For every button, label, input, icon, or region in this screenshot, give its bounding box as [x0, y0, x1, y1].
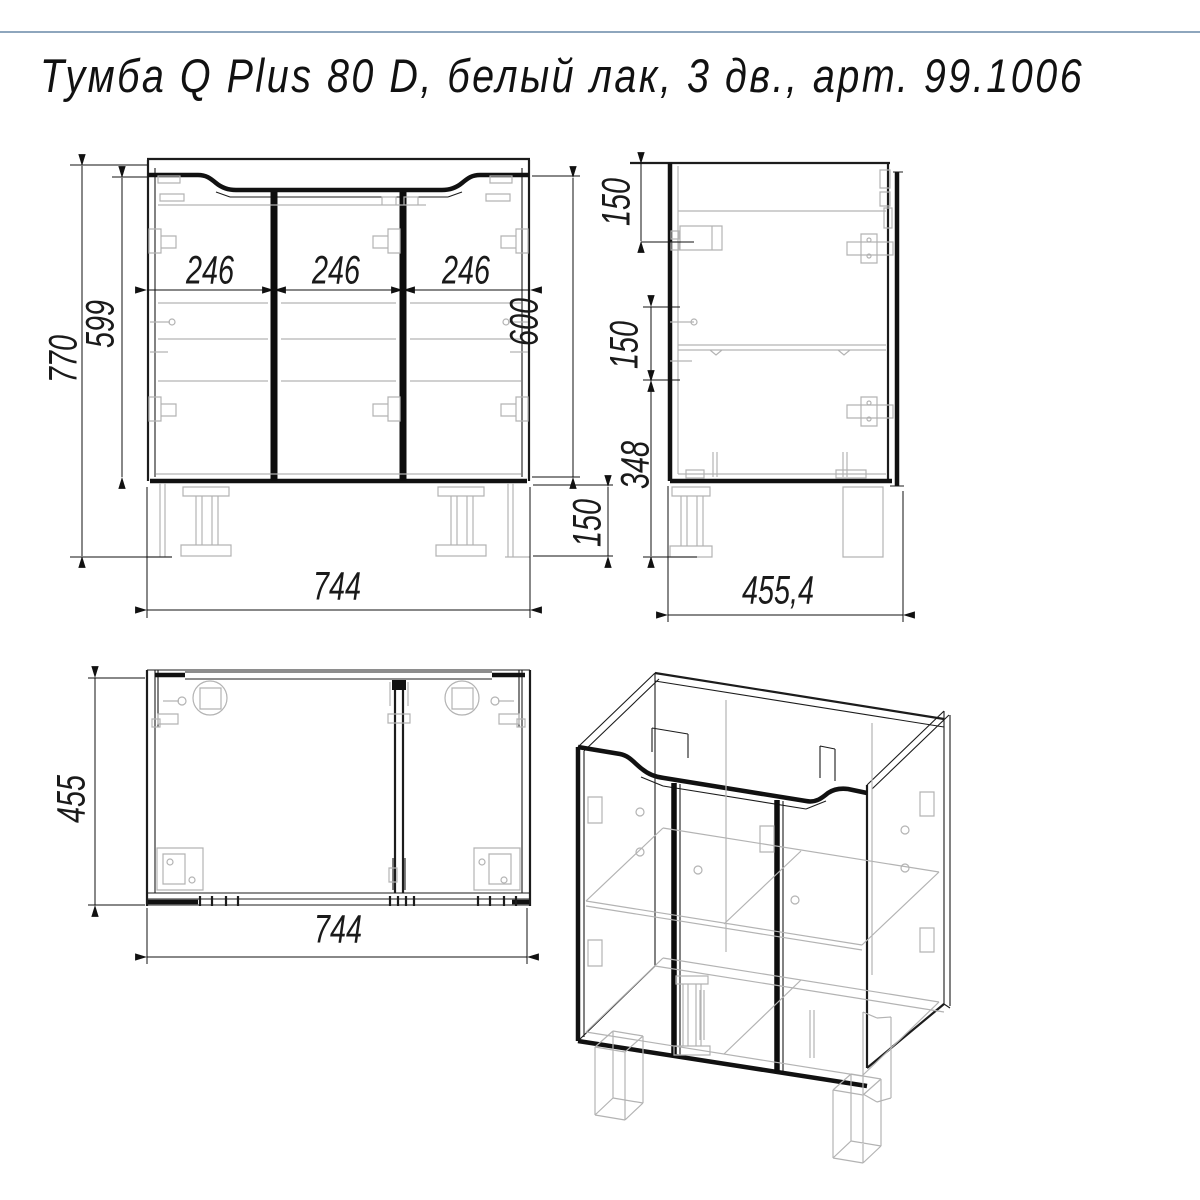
top-view	[88, 670, 530, 964]
dim-side-mid-spacing: 150	[603, 321, 648, 369]
dim-front-door2-width: 246	[312, 249, 360, 294]
isometric-view	[578, 673, 950, 1163]
dim-front-right-height: 600	[503, 298, 548, 346]
dim-front-leg-height: 150	[566, 499, 611, 547]
dim-side-depth: 455,4	[742, 569, 814, 614]
dim-top-width: 744	[314, 908, 362, 953]
front-view	[70, 159, 613, 618]
side-view	[630, 163, 904, 622]
dim-top-depth: 455	[50, 775, 95, 823]
dim-front-inner-height: 599	[79, 300, 124, 348]
dim-side-bottom-section: 348	[614, 441, 659, 489]
dim-front-width: 744	[313, 565, 361, 610]
dim-front-door1-width: 246	[186, 249, 234, 294]
dim-side-top-offset: 150	[595, 178, 640, 226]
drawing-sheet: Тумба Q Plus 80 D, белый лак, 3 дв., арт…	[0, 0, 1200, 1200]
dim-front-door3-width: 246	[442, 249, 490, 294]
